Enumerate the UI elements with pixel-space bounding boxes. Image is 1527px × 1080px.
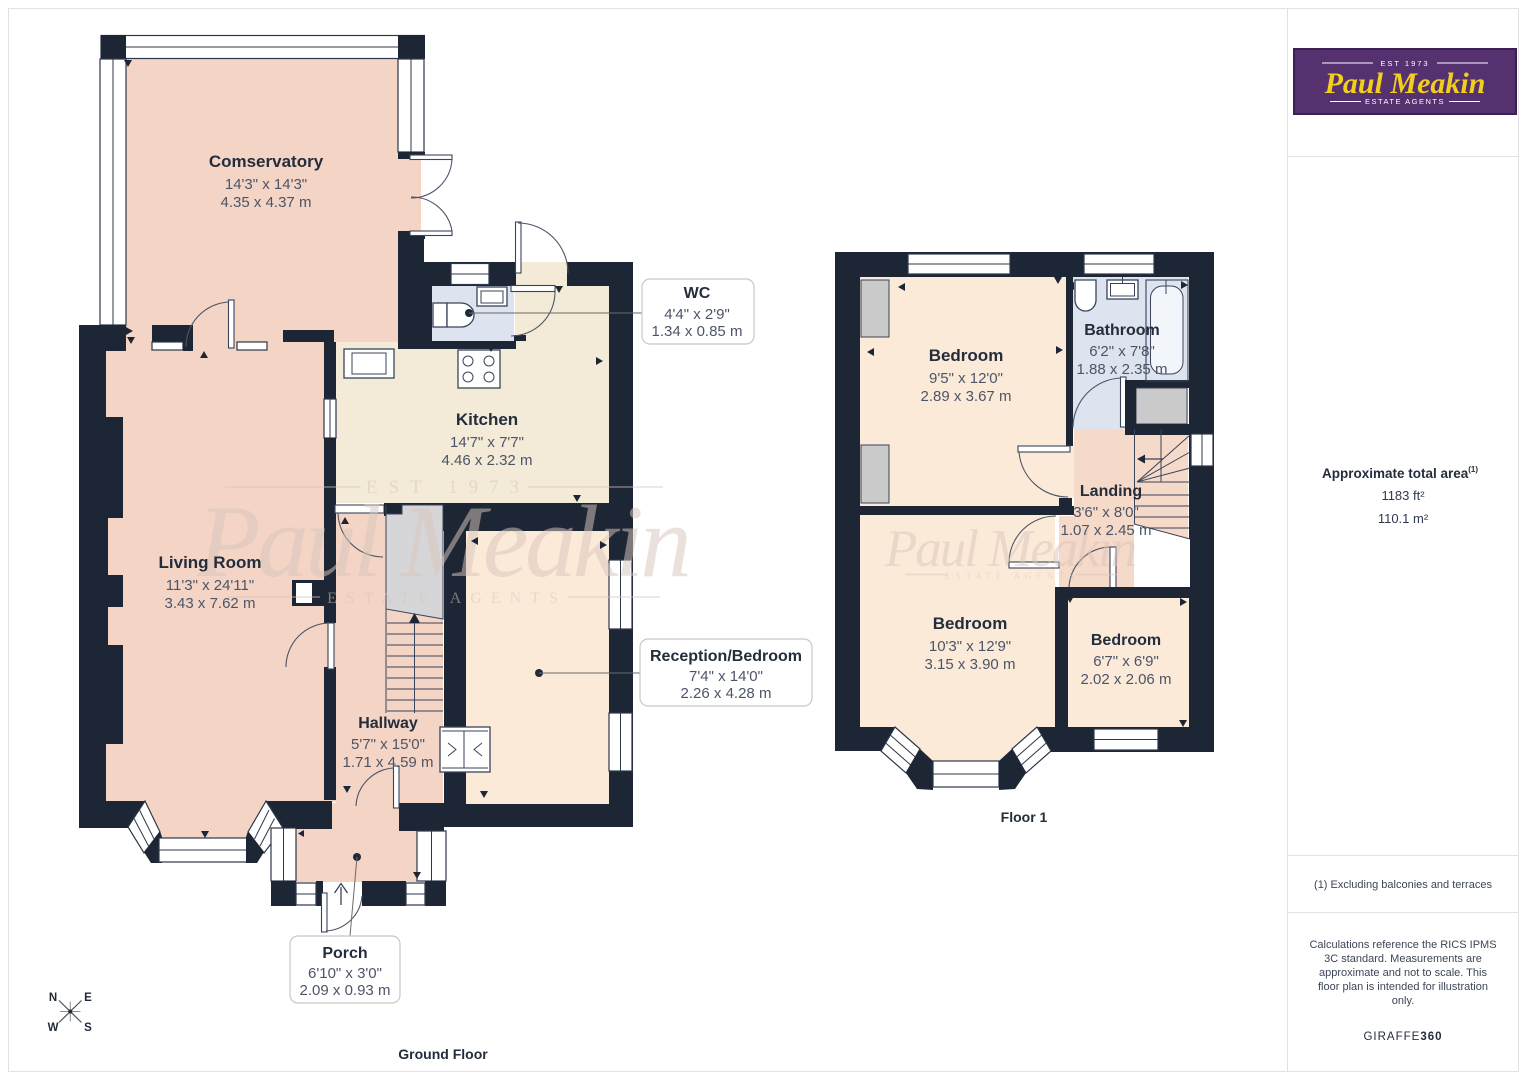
svg-text:E: E	[84, 992, 92, 1004]
svg-text:2.89 x 3.67 m: 2.89 x 3.67 m	[921, 388, 1012, 405]
svg-text:Approximate total area(1): Approximate total area(1)	[1322, 465, 1478, 481]
svg-text:Comservatory: Comservatory	[209, 152, 324, 171]
svg-text:14'3" x 14'3": 14'3" x 14'3"	[225, 176, 307, 193]
svg-text:14'7" x 7'7": 14'7" x 7'7"	[450, 434, 524, 451]
svg-text:W: W	[48, 1022, 59, 1034]
svg-text:11'3" x 24'11": 11'3" x 24'11"	[166, 577, 254, 594]
svg-text:approximate and not to scale.: approximate and not to scale. This	[1319, 967, 1487, 979]
svg-text:10'3" x 12'9": 10'3" x 12'9"	[929, 638, 1011, 655]
svg-text:1.71 x 4.59 m: 1.71 x 4.59 m	[343, 754, 434, 771]
svg-text:Living Room: Living Room	[159, 553, 262, 572]
svg-text:Hallway: Hallway	[358, 715, 418, 732]
svg-text:floor plan is intended for ill: floor plan is intended for illustration	[1318, 981, 1488, 993]
svg-text:Porch: Porch	[322, 945, 367, 962]
svg-text:Bedroom: Bedroom	[1091, 632, 1161, 649]
svg-text:Bathroom: Bathroom	[1084, 322, 1160, 339]
svg-text:1.07 x 2.45 m: 1.07 x 2.45 m	[1061, 522, 1152, 539]
svg-text:6'7" x 6'9": 6'7" x 6'9"	[1093, 653, 1159, 670]
svg-text:1183 ft²: 1183 ft²	[1381, 488, 1425, 503]
svg-text:110.1 m²: 110.1 m²	[1378, 511, 1429, 526]
svg-text:5'7" x 15'0": 5'7" x 15'0"	[351, 736, 425, 753]
svg-text:N: N	[49, 992, 57, 1004]
svg-text:Ground Floor: Ground Floor	[398, 1046, 488, 1062]
svg-text:S: S	[84, 1022, 92, 1034]
svg-text:3.15 x 3.90 m: 3.15 x 3.90 m	[925, 656, 1016, 673]
svg-text:6'10" x 3'0": 6'10" x 3'0"	[308, 965, 382, 982]
svg-text:3C standard. Measurements are: 3C standard. Measurements are	[1324, 953, 1482, 965]
svg-text:Bedroom: Bedroom	[933, 614, 1008, 633]
svg-text:1.34 x 0.85 m: 1.34 x 0.85 m	[652, 323, 743, 340]
svg-text:GIRAFFE360: GIRAFFE360	[1363, 1031, 1442, 1043]
svg-text:2.09 x 0.93 m: 2.09 x 0.93 m	[300, 982, 391, 999]
svg-text:7'4" x 14'0": 7'4" x 14'0"	[689, 668, 763, 685]
svg-text:Paul Meakin: Paul Meakin	[197, 485, 689, 599]
svg-text:Paul Meakin: Paul Meakin	[1324, 67, 1486, 100]
svg-text:Calculations reference the RIC: Calculations reference the RICS IPMS	[1309, 939, 1496, 951]
svg-text:ESTATE AGENTS: ESTATE AGENTS	[1365, 97, 1445, 106]
svg-text:ESTATE AGENTS: ESTATE AGENTS	[945, 571, 1079, 581]
svg-text:Landing: Landing	[1080, 483, 1142, 500]
svg-text:(1) Excluding balconies and te: (1) Excluding balconies and terraces	[1314, 879, 1492, 891]
svg-text:ESTATE AGENTS: ESTATE AGENTS	[327, 590, 567, 607]
svg-text:Kitchen: Kitchen	[456, 410, 518, 429]
svg-text:1.88 x 2.35 m: 1.88 x 2.35 m	[1077, 361, 1168, 378]
svg-text:Reception/Bedroom: Reception/Bedroom	[650, 648, 802, 665]
svg-text:4.46 x 2.32 m: 4.46 x 2.32 m	[442, 452, 533, 469]
svg-text:only.: only.	[1392, 995, 1414, 1007]
svg-text:2.26 x 4.28 m: 2.26 x 4.28 m	[681, 685, 772, 702]
svg-text:9'5" x 12'0": 9'5" x 12'0"	[929, 370, 1003, 387]
svg-text:3.43 x 7.62 m: 3.43 x 7.62 m	[165, 595, 256, 612]
svg-text:4.35 x 4.37 m: 4.35 x 4.37 m	[221, 194, 312, 211]
svg-text:WC: WC	[684, 285, 711, 302]
svg-text:2.02 x 2.06 m: 2.02 x 2.06 m	[1081, 671, 1172, 688]
svg-text:4'4" x 2'9": 4'4" x 2'9"	[664, 306, 730, 323]
svg-text:Floor 1: Floor 1	[1001, 809, 1048, 825]
svg-text:6'2" x 7'8": 6'2" x 7'8"	[1089, 343, 1155, 360]
svg-text:3'6" x 8'0": 3'6" x 8'0"	[1073, 504, 1139, 521]
svg-text:Bedroom: Bedroom	[929, 346, 1004, 365]
